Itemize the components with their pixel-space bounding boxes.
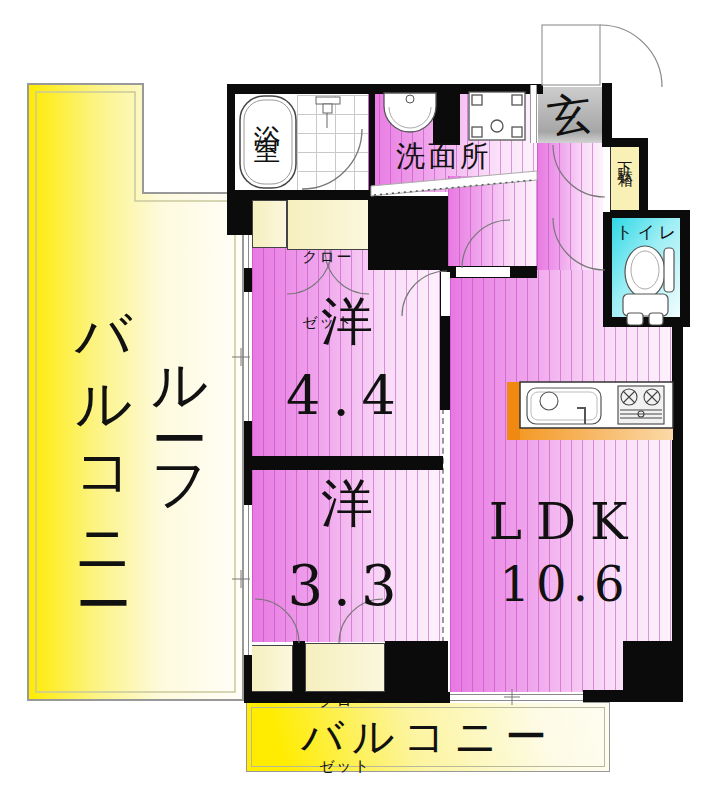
entrance-label: 玄: [545, 90, 595, 140]
ldk-size: 10.6: [455, 560, 675, 608]
floorplan: ルーフ バルコニー バルコニー 浴室 洗面所 玄 下駄箱 トイレ クロー ゼット…: [0, 0, 720, 800]
room-4-4-name: 洋: [252, 295, 442, 347]
wall-bathroom-left: [227, 84, 235, 192]
bathroom-label: 浴室: [254, 104, 281, 124]
closet-lower-label-line2: ゼット: [305, 756, 385, 778]
closet-upper-strip: [252, 200, 287, 248]
wall-toilet-top: [610, 210, 690, 218]
room-3-3-size: 3.3: [252, 558, 442, 614]
sliding-partition: [442, 408, 450, 643]
wall-toilet-left: [603, 212, 612, 327]
roof-balcony-label-roof: ルーフ: [152, 328, 208, 510]
closet-upper-label-line1: クロー: [287, 247, 369, 269]
roof-balcony-label-balcony: バルコニー: [76, 272, 132, 587]
shoe-cabinet-label: 下駄箱: [617, 150, 632, 165]
washroom-label: 洗面所: [396, 142, 492, 171]
closet-lower-label: クロー ゼット: [305, 647, 385, 800]
bathroom-tile-floor: [297, 95, 369, 190]
wall-sink-block: [433, 92, 460, 145]
door-opening-room-4-4: [441, 272, 450, 316]
wall-top: [227, 84, 543, 94]
room-4-4-size: 4.4: [252, 370, 442, 424]
room-3-3-name: 洋: [252, 477, 442, 529]
window-ldk-balcony: [450, 692, 583, 703]
door-opening-hall-ldk: [456, 267, 510, 277]
window-room-3-3: [244, 505, 252, 655]
hall-extension-floor: [448, 176, 537, 270]
window-room-4-4: [244, 292, 252, 421]
toilet-label: トイレ: [616, 224, 680, 241]
ldk-floor: [450, 270, 673, 692]
wall-left-1: [244, 268, 252, 292]
wall-entrance-right: [602, 83, 612, 145]
balcony-label: バルコニー: [246, 716, 610, 758]
hallway-floor: [537, 142, 603, 270]
closet-lower-label-line1: クロー: [305, 691, 385, 713]
wall-between-bedrooms: [252, 456, 443, 470]
wall-closet-divider: [293, 641, 305, 701]
wall-toilet-right: [680, 216, 690, 327]
wall-block-bottom-center: [385, 641, 448, 703]
wall-shoe-right: [639, 145, 648, 217]
wall-bath-washroom-divider: [369, 86, 375, 192]
closet-lower-strip: [250, 645, 293, 692]
wall-toilet-bottom: [603, 317, 690, 327]
wall-corner-topleft: [227, 190, 252, 235]
ldk-name: LDK: [455, 497, 675, 547]
wall-bathroom-bottom: [233, 190, 375, 200]
wall-center-block: [368, 196, 448, 270]
doorframe-washroom-entrance: [530, 85, 537, 143]
wall-left-2: [244, 421, 252, 505]
window-room-4-4-upper: [244, 235, 252, 268]
